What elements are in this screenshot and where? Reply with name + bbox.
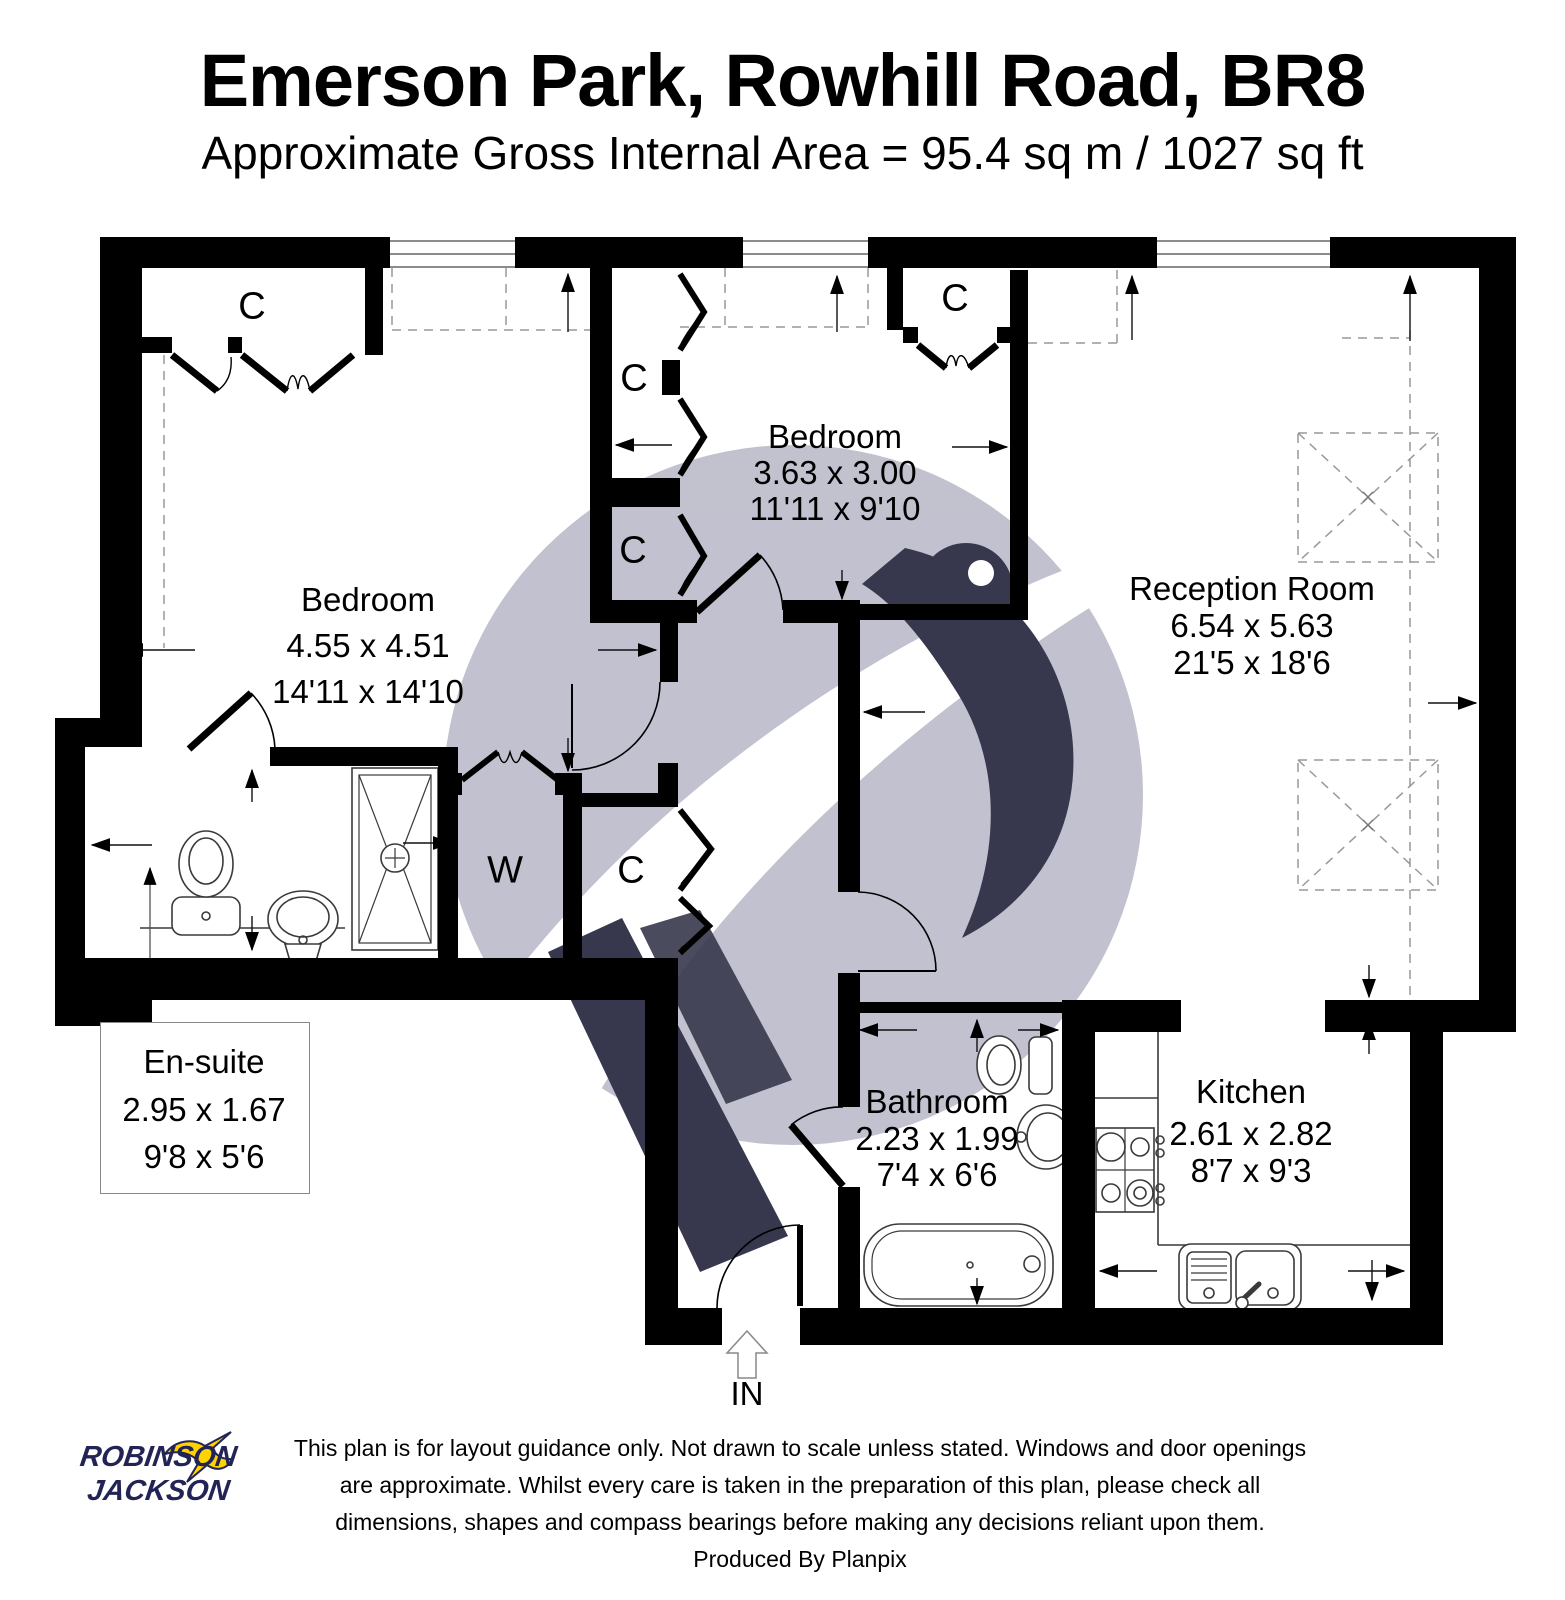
entry-in-arrow-icon (727, 1331, 767, 1378)
entrance-label: IN (731, 1375, 764, 1413)
closet-label-bedroom2-left-bottom: C (619, 530, 646, 573)
reception-imperial: 21'5 x 18'6 (1173, 644, 1331, 682)
floorplan-page: Emerson Park, Rowhill Road, BR8 Approxim… (0, 0, 1565, 1600)
bedroom2-metric: 3.63 x 3.00 (753, 454, 916, 492)
wardrobe-label: W (487, 850, 523, 893)
roof-window-centers (1363, 492, 1373, 830)
bedroom1-name: Bedroom (301, 581, 435, 619)
closet-label-hall: C (617, 850, 644, 893)
logo-line-2: JACKSON (64, 1474, 254, 1508)
disclaimer-line-1: This plan is for layout guidance only. N… (60, 1430, 1540, 1467)
bedroom2-corner-closet-doors-icon (918, 345, 997, 368)
ensuite-fixtures-icon (140, 768, 438, 968)
closet-label-bedroom2-left-top: C (620, 358, 647, 401)
bedroom1-imperial: 14'11 x 14'10 (272, 673, 464, 711)
ensuite-door-icon (189, 693, 275, 749)
bathroom-imperial: 7'4 x 6'6 (877, 1156, 998, 1194)
bathroom-metric: 2.23 x 1.99 (855, 1120, 1018, 1158)
disclaimer-line-2: are approximate. Whilst every care is ta… (60, 1467, 1540, 1504)
kitchen-metric: 2.61 x 2.82 (1169, 1115, 1332, 1153)
disclaimer: This plan is for layout guidance only. N… (60, 1430, 1540, 1578)
ensuite-metric: 2.95 x 1.67 (122, 1091, 285, 1129)
bedroom1-metric: 4.55 x 4.51 (286, 627, 449, 665)
disclaimer-line-3: dimensions, shapes and compass bearings … (60, 1504, 1540, 1541)
bedroom2-name: Bedroom (768, 418, 902, 456)
closet-label-bedroom2-corner: C (941, 278, 968, 321)
closet-label-bedroom1: C (238, 286, 265, 329)
bedroom2-imperial: 11'11 x 9'10 (749, 490, 920, 528)
reception-metric: 6.54 x 5.63 (1170, 607, 1333, 645)
bedroom1-closet-doors-icon (172, 355, 353, 391)
ensuite-name: En-suite (143, 1043, 264, 1081)
kitchen-imperial: 8'7 x 9'3 (1191, 1152, 1312, 1190)
reception-name: Reception Room (1129, 570, 1375, 608)
floor-plan (0, 0, 1565, 1600)
ensuite-imperial: 9'8 x 5'6 (144, 1138, 265, 1176)
logo-line-1: ROBINSON (64, 1440, 254, 1474)
kitchen-name: Kitchen (1196, 1073, 1306, 1111)
disclaimer-line-4: Produced By Planpix (60, 1541, 1540, 1578)
robinson-jackson-logo: ROBINSON JACKSON (66, 1440, 251, 1508)
bathroom-name: Bathroom (865, 1083, 1008, 1121)
